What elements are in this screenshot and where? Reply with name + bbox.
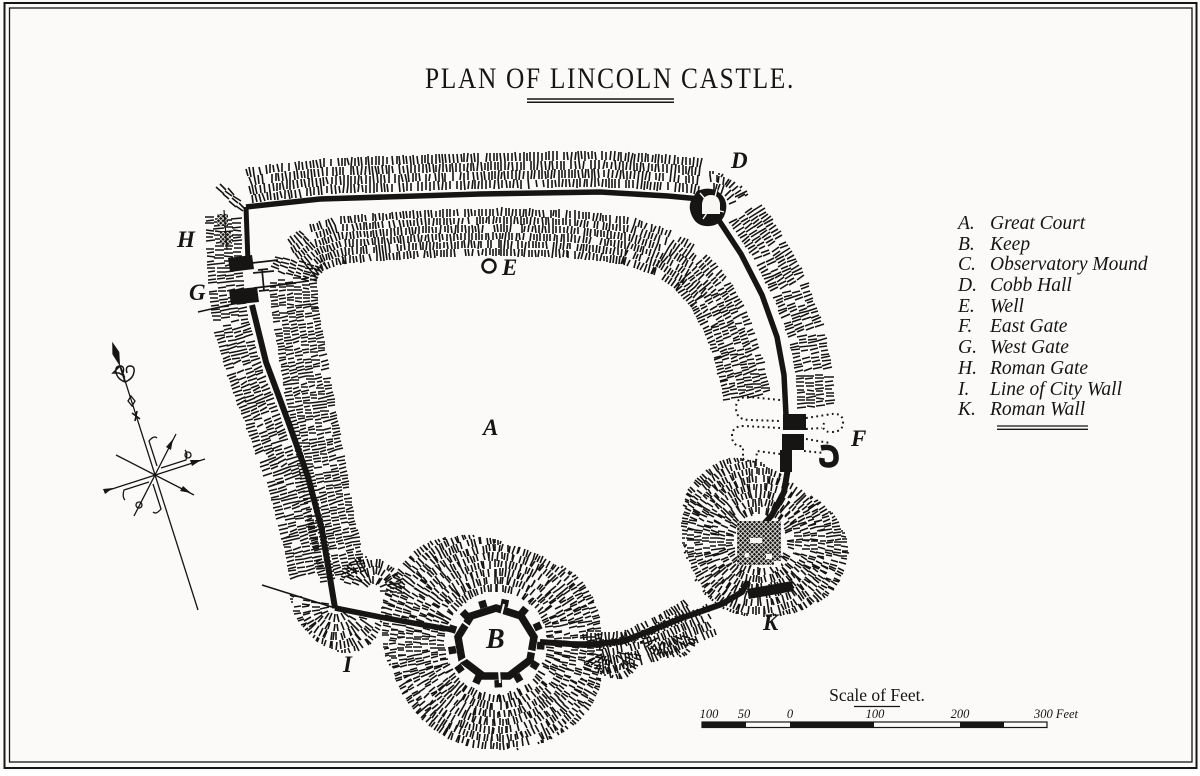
svg-text:Observatory Mound: Observatory Mound: [990, 254, 1148, 275]
svg-text:E: E: [501, 255, 517, 280]
svg-text:A.: A.: [956, 213, 975, 234]
svg-text:B.: B.: [958, 234, 975, 255]
svg-text:H.: H.: [957, 358, 977, 379]
svg-text:50: 50: [738, 707, 751, 721]
svg-text:D: D: [730, 148, 748, 173]
svg-text:Keep: Keep: [989, 234, 1030, 255]
svg-text:E.: E.: [957, 296, 975, 317]
svg-text:East Gate: East Gate: [989, 316, 1068, 337]
svg-text:Roman Wall: Roman Wall: [989, 399, 1085, 420]
svg-text:G.: G.: [958, 337, 977, 358]
svg-text:Roman Gate: Roman Gate: [989, 358, 1088, 379]
svg-text:Well: Well: [990, 296, 1024, 317]
svg-text:B: B: [485, 624, 505, 655]
svg-text:F: F: [850, 426, 866, 451]
svg-text:A: A: [481, 415, 498, 440]
svg-text:H: H: [176, 227, 196, 252]
svg-text:300 Feet: 300 Feet: [1033, 707, 1079, 721]
svg-text:D.: D.: [957, 275, 977, 296]
svg-text:I.: I.: [957, 379, 969, 400]
svg-text:West Gate: West Gate: [990, 337, 1069, 358]
svg-text:I: I: [342, 652, 353, 677]
svg-text:100: 100: [866, 707, 886, 721]
svg-text:K.: K.: [957, 399, 976, 420]
svg-text:200: 200: [951, 707, 971, 721]
svg-text:Great Court: Great Court: [990, 213, 1086, 234]
svg-text:F.: F.: [957, 316, 972, 337]
svg-text:PLAN OF LINCOLN CASTLE.: PLAN OF LINCOLN CASTLE.: [425, 62, 795, 95]
svg-text:G: G: [189, 280, 206, 305]
svg-text:Cobb Hall: Cobb Hall: [990, 275, 1072, 296]
svg-text:0: 0: [787, 707, 794, 721]
svg-text:C.: C.: [958, 254, 976, 275]
svg-text:Line of City Wall: Line of City Wall: [989, 379, 1122, 400]
svg-text:K: K: [762, 610, 780, 635]
svg-text:100: 100: [700, 707, 720, 721]
svg-text:Scale of Feet.: Scale of Feet.: [829, 685, 925, 705]
